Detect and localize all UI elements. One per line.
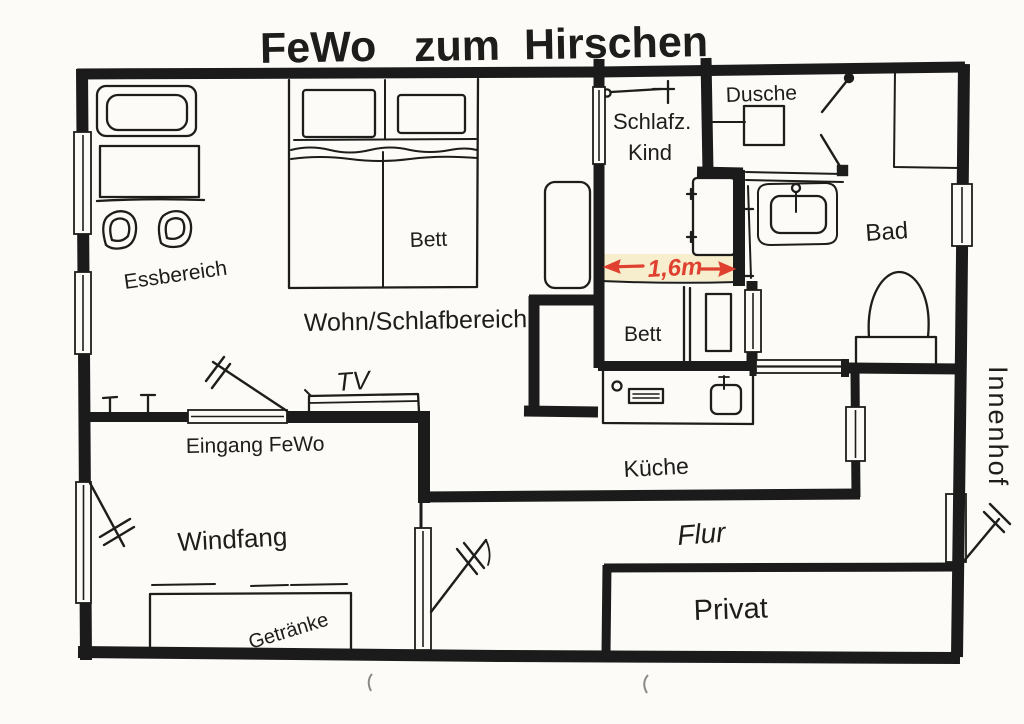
- svg-text:FeWozumHirschen: FeWozumHirschen: [260, 17, 709, 74]
- svg-text:Innenhof: Innenhof: [983, 366, 1013, 487]
- svg-text:Kind: Kind: [628, 140, 672, 165]
- svg-text:TV: TV: [335, 365, 373, 397]
- svg-text:Wohn/Schlafbereich: Wohn/Schlafbereich: [304, 305, 528, 337]
- svg-text:Dusche: Dusche: [725, 82, 797, 107]
- svg-text:Schlafz.: Schlafz.: [613, 109, 691, 134]
- svg-text:Küche: Küche: [623, 453, 689, 482]
- svg-text:Privat: Privat: [693, 592, 768, 627]
- svg-text:1,6m: 1,6m: [647, 253, 703, 283]
- svg-text:Flur: Flur: [676, 517, 728, 551]
- svg-text:Bett: Bett: [409, 228, 447, 252]
- svg-text:Bad: Bad: [865, 217, 909, 247]
- svg-text:Windfang: Windfang: [177, 521, 288, 557]
- svg-text:Bett: Bett: [624, 323, 662, 346]
- svg-text:Eingang FeWo: Eingang FeWo: [186, 433, 325, 458]
